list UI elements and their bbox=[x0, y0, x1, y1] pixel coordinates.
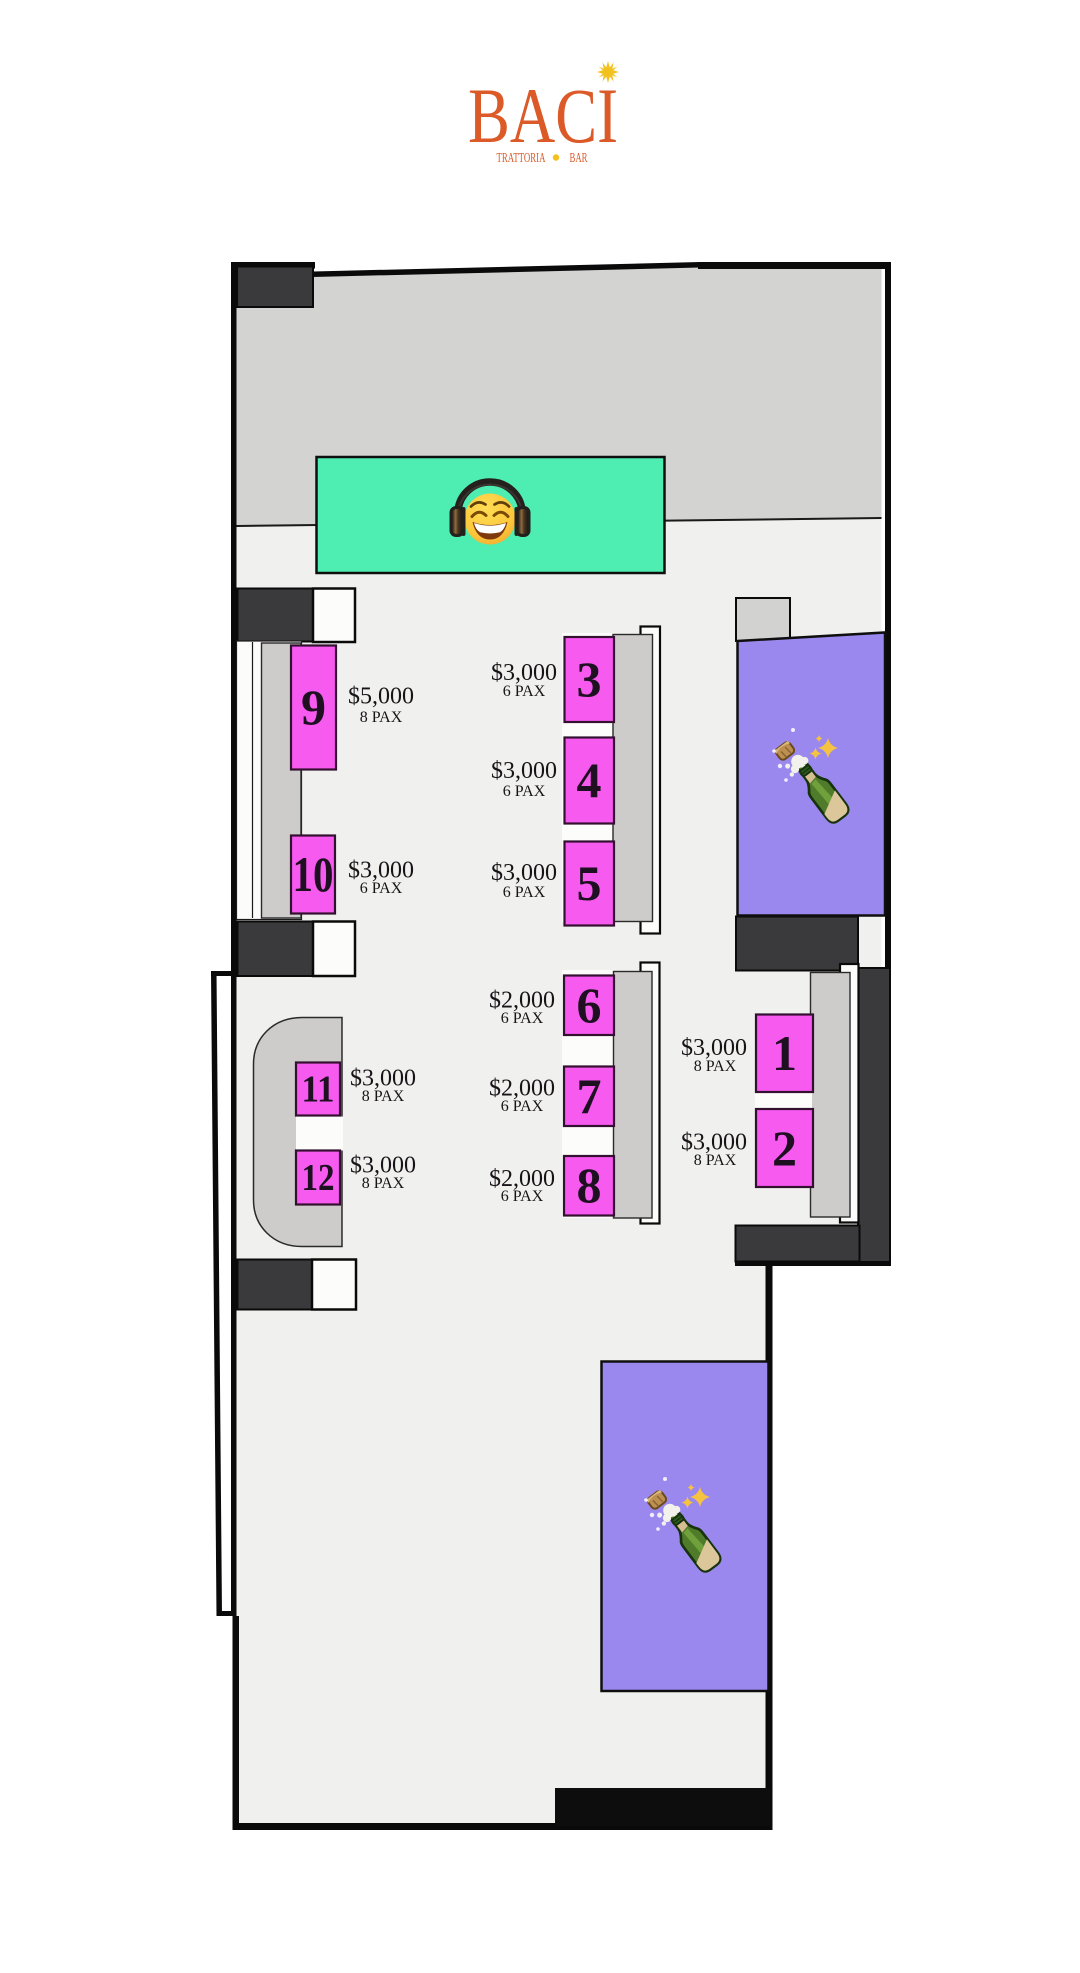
svg-text:1: 1 bbox=[772, 1025, 797, 1081]
svg-text:6 PAX: 6 PAX bbox=[503, 683, 546, 700]
svg-text:9: 9 bbox=[301, 679, 326, 735]
svg-text:TRATTORIA: TRATTORIA bbox=[497, 150, 546, 165]
svg-text:$3,000: $3,000 bbox=[491, 758, 557, 784]
svg-text:8: 8 bbox=[577, 1157, 602, 1213]
svg-text:2: 2 bbox=[772, 1120, 797, 1176]
svg-text:6 PAX: 6 PAX bbox=[360, 880, 403, 897]
svg-text:11: 11 bbox=[302, 1069, 335, 1111]
svg-text:$3,000: $3,000 bbox=[491, 860, 557, 886]
svg-text:3: 3 bbox=[577, 651, 602, 707]
svg-text:6 PAX: 6 PAX bbox=[503, 884, 546, 901]
svg-text:5: 5 bbox=[577, 855, 602, 911]
svg-text:8 PAX: 8 PAX bbox=[360, 709, 403, 726]
svg-text:6: 6 bbox=[577, 977, 602, 1033]
svg-text:4: 4 bbox=[577, 752, 602, 808]
svg-text:6 PAX: 6 PAX bbox=[501, 1188, 544, 1205]
svg-text:8 PAX: 8 PAX bbox=[694, 1058, 737, 1075]
svg-text:BAR: BAR bbox=[570, 150, 588, 165]
svg-text:6 PAX: 6 PAX bbox=[503, 783, 546, 800]
svg-text:7: 7 bbox=[577, 1068, 602, 1124]
svg-text:BACI: BACI bbox=[468, 72, 618, 159]
svg-text:6 PAX: 6 PAX bbox=[501, 1098, 544, 1115]
svg-text:12: 12 bbox=[302, 1157, 335, 1199]
svg-text:8 PAX: 8 PAX bbox=[362, 1175, 405, 1192]
svg-text:8 PAX: 8 PAX bbox=[694, 1152, 737, 1169]
svg-text:6 PAX: 6 PAX bbox=[501, 1010, 544, 1027]
svg-text:10: 10 bbox=[293, 846, 334, 902]
svg-text:$5,000: $5,000 bbox=[348, 684, 414, 710]
svg-text:8 PAX: 8 PAX bbox=[362, 1088, 405, 1105]
